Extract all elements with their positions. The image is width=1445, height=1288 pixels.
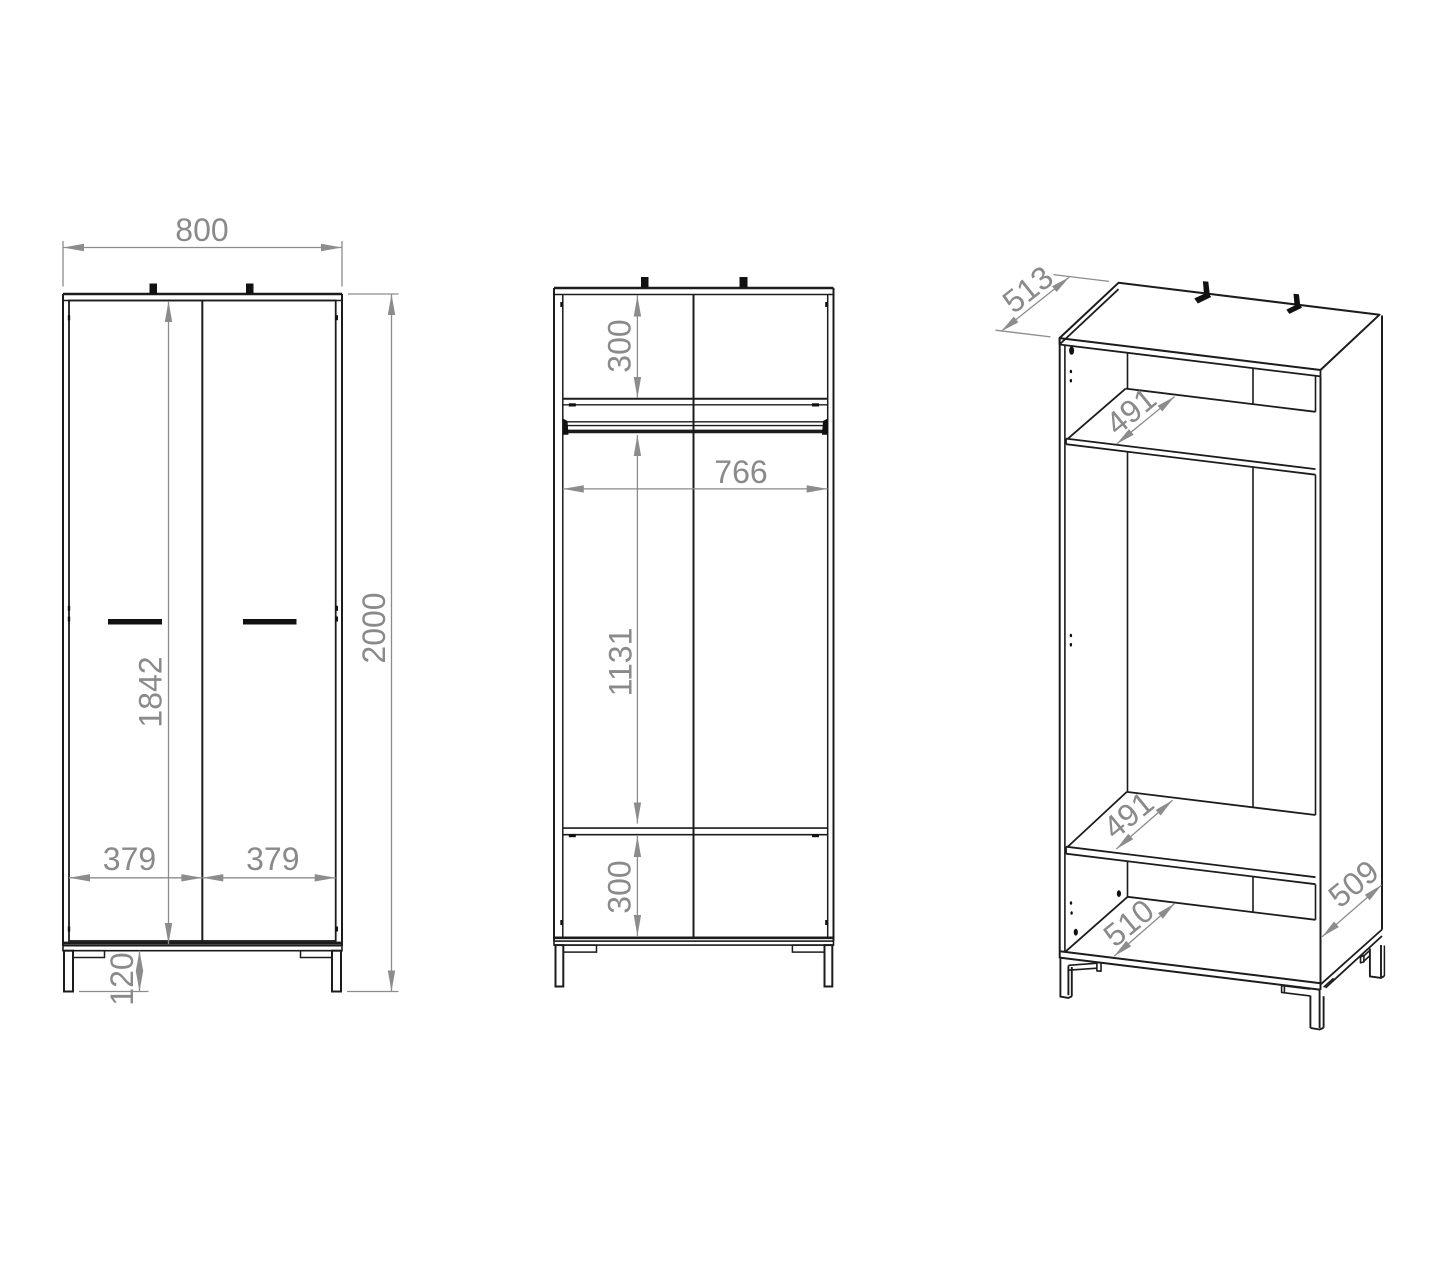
svg-text:800: 800 [175,212,228,248]
svg-text:379: 379 [103,841,156,877]
svg-text:300: 300 [602,319,638,372]
svg-text:2000: 2000 [356,592,392,663]
svg-text:766: 766 [714,454,767,490]
svg-text:120: 120 [104,952,140,1005]
svg-text:379: 379 [246,841,299,877]
svg-text:1131: 1131 [603,628,639,697]
svg-text:1842: 1842 [133,656,169,727]
svg-text:300: 300 [602,860,638,913]
